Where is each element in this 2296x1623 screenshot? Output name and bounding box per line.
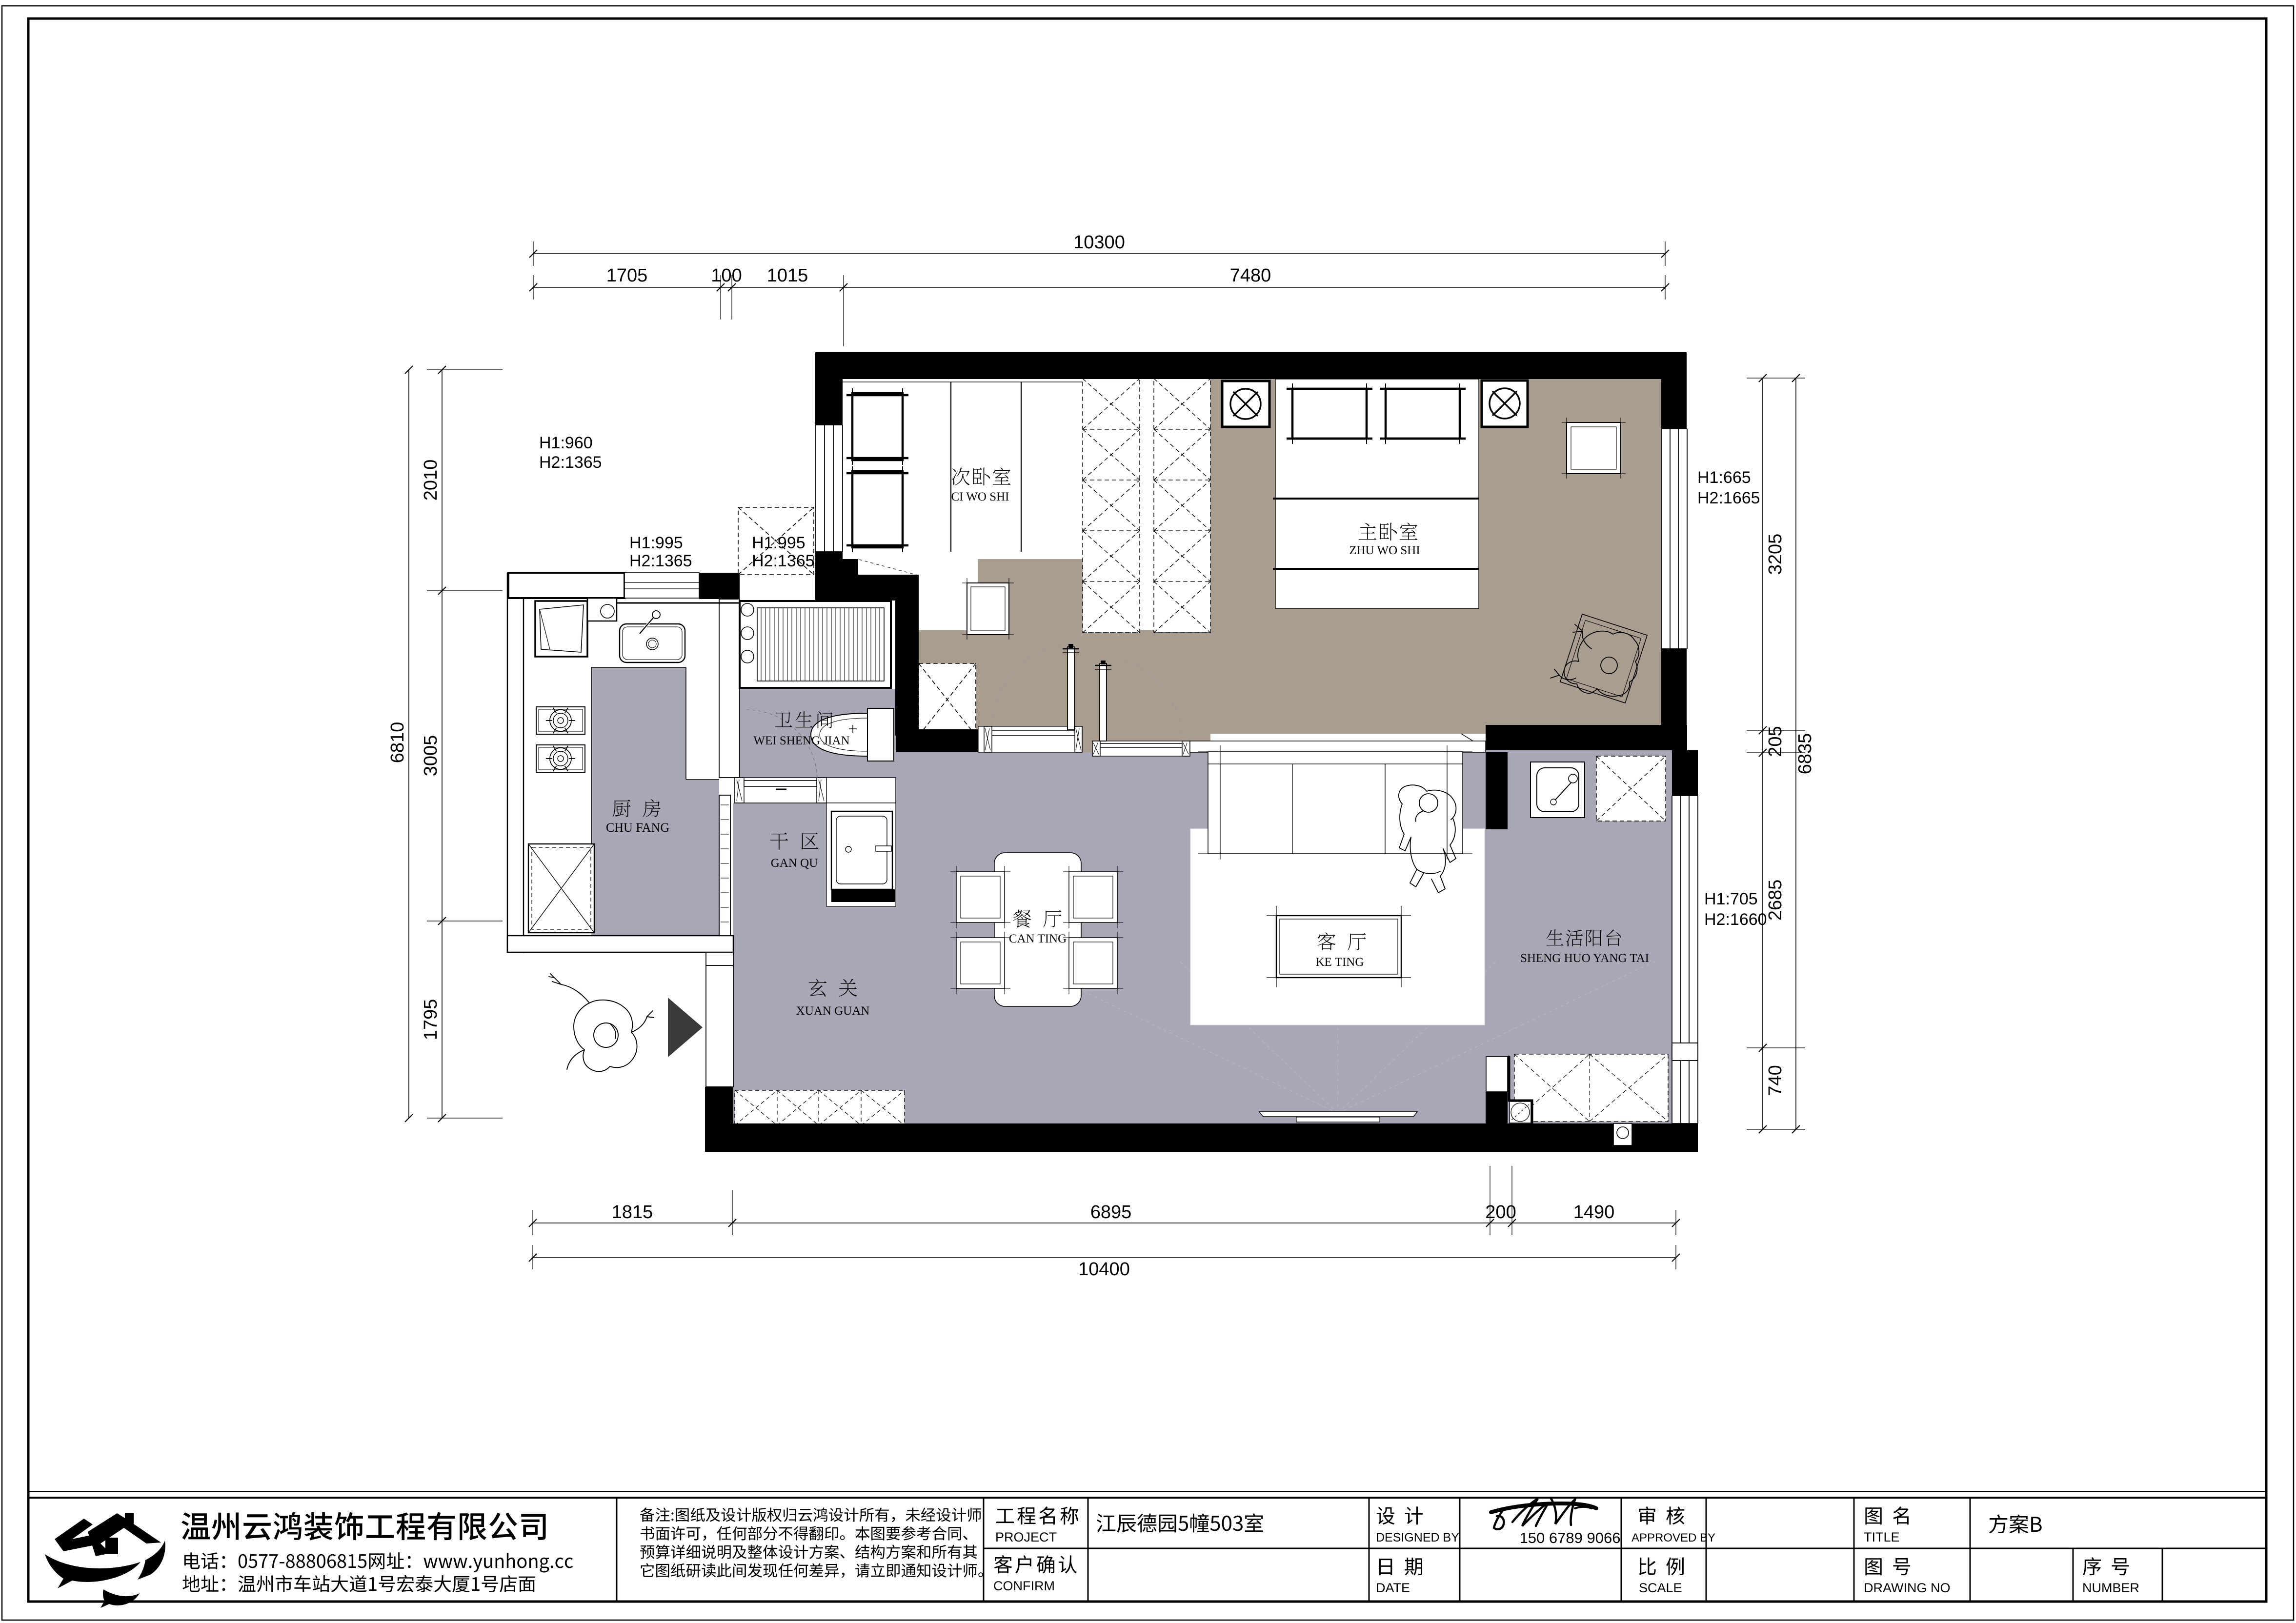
svg-text:205: 205 [1765,726,1786,757]
svg-text:H2:1660: H2:1660 [1704,910,1767,929]
svg-text:H2:1365: H2:1365 [629,552,692,570]
svg-text:2685: 2685 [1765,880,1786,921]
svg-text:6835: 6835 [1795,733,1815,775]
svg-text:XUAN GUAN: XUAN GUAN [796,1004,870,1018]
svg-text:APPROVED BY: APPROVED BY [1631,1531,1715,1544]
svg-text:1705: 1705 [606,265,648,286]
svg-text:ZHU WO SHI: ZHU WO SHI [1349,544,1420,557]
svg-text:GAN QU: GAN QU [771,857,818,870]
svg-text:150 6789 9066: 150 6789 9066 [1520,1529,1621,1546]
svg-text:6895: 6895 [1090,1202,1132,1222]
svg-text:H1:705: H1:705 [1704,890,1758,908]
svg-text:740: 740 [1765,1065,1786,1096]
svg-text:7480: 7480 [1230,265,1271,286]
svg-text:SHENG HUO YANG TAI: SHENG HUO YANG TAI [1520,952,1649,965]
svg-text:CAN TING: CAN TING [1009,932,1067,945]
svg-text:DESIGNED BY: DESIGNED BY [1376,1531,1459,1544]
svg-text:1815: 1815 [612,1202,653,1222]
svg-text:H1:995: H1:995 [629,534,683,552]
svg-text:100: 100 [711,265,742,286]
svg-text:H1:995: H1:995 [752,534,806,552]
svg-text:WEI SHENG JIAN: WEI SHENG JIAN [753,734,849,747]
svg-text:1795: 1795 [421,999,441,1041]
svg-text:1490: 1490 [1573,1202,1615,1222]
svg-text:1015: 1015 [767,265,808,286]
svg-text:10300: 10300 [1073,232,1125,253]
svg-text:CHU FANG: CHU FANG [606,821,669,835]
svg-text:SCALE: SCALE [1639,1581,1682,1595]
svg-text:3205: 3205 [1765,534,1786,575]
svg-text:200: 200 [1485,1202,1516,1222]
svg-text:CONFIRM: CONFIRM [993,1579,1055,1593]
svg-text:10400: 10400 [1078,1259,1130,1280]
svg-text:3005: 3005 [421,735,441,777]
svg-text:CI WO SHI: CI WO SHI [951,490,1009,503]
svg-text:H2:1665: H2:1665 [1697,489,1760,507]
svg-text:DATE: DATE [1376,1581,1410,1595]
svg-text:6810: 6810 [387,722,408,763]
svg-text:H2:1365: H2:1365 [752,552,815,570]
svg-text:PROJECT: PROJECT [995,1530,1057,1544]
svg-text:H2:1365: H2:1365 [539,453,602,472]
svg-text:H1:665: H1:665 [1697,468,1751,487]
svg-text:H1:960: H1:960 [539,434,593,452]
svg-text:KE TING: KE TING [1316,956,1364,969]
svg-text:DRAWING NO: DRAWING NO [1864,1581,1951,1595]
svg-text:2010: 2010 [421,460,441,501]
svg-text:TITLE: TITLE [1864,1530,1900,1544]
svg-text:NUMBER: NUMBER [2082,1581,2139,1595]
